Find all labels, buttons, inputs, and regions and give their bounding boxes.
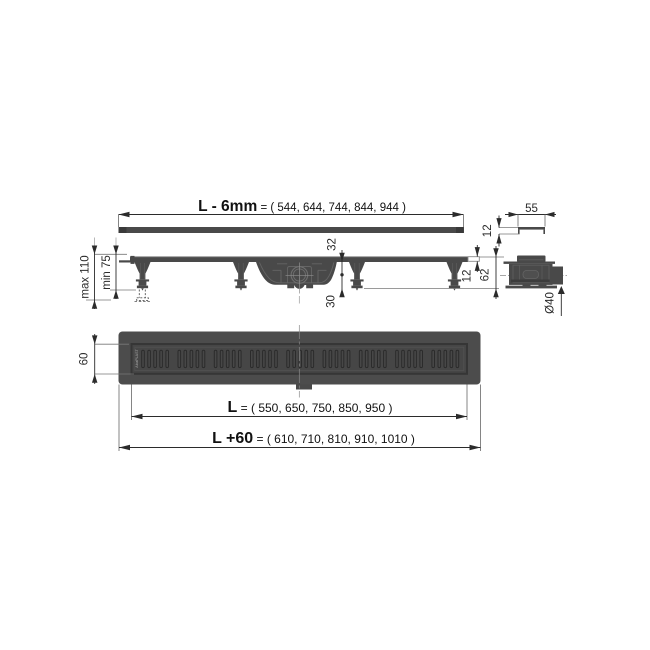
svg-text:12: 12	[462, 270, 474, 283]
svg-text:30: 30	[326, 295, 338, 308]
svg-text:12: 12	[482, 224, 494, 237]
svg-text:AlcaPLAST: AlcaPLAST	[135, 349, 139, 368]
svg-text:Ø40: Ø40	[545, 292, 557, 314]
svg-text:min 75: min 75	[101, 255, 113, 290]
svg-text:62: 62	[480, 269, 492, 282]
svg-text:60: 60	[79, 353, 91, 366]
svg-text:55: 55	[525, 203, 538, 215]
svg-text:L = ( 550, 650, 750, 850, 950: L = ( 550, 650, 750, 850, 950 )	[228, 399, 393, 416]
svg-text:32: 32	[327, 238, 339, 251]
svg-text:max 110: max 110	[80, 255, 92, 298]
svg-text:L +60 = ( 610, 710, 810, 910,: L +60 = ( 610, 710, 810, 910, 1010 )	[212, 430, 415, 447]
svg-text:L - 6mm = ( 544, 644, 744, 844: L - 6mm = ( 544, 644, 744, 844, 944 )	[198, 198, 406, 215]
